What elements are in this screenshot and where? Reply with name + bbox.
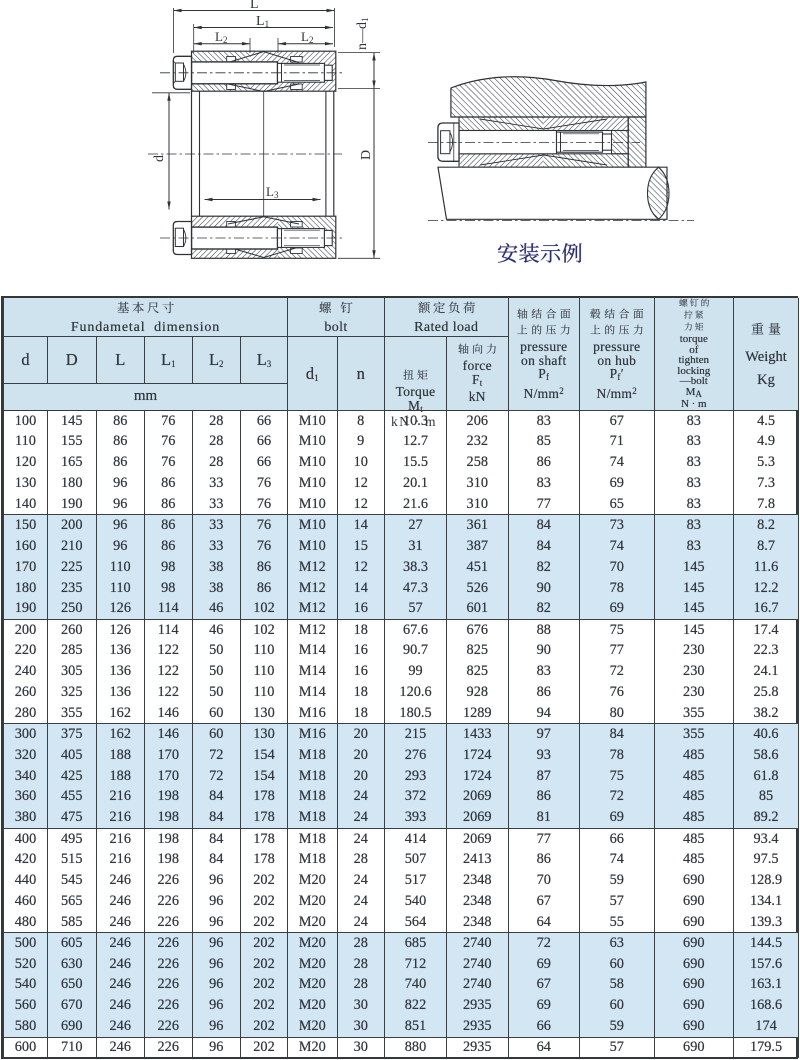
svg-text:L2: L2 — [301, 29, 313, 45]
svg-text:D: D — [359, 150, 374, 160]
svg-text:d: d — [152, 155, 167, 162]
svg-text:L: L — [250, 0, 259, 12]
svg-text:L2: L2 — [215, 29, 227, 45]
svg-text:n—d1: n—d1 — [355, 18, 370, 51]
svg-text:L3: L3 — [266, 184, 279, 200]
svg-text:L1: L1 — [256, 14, 269, 29]
